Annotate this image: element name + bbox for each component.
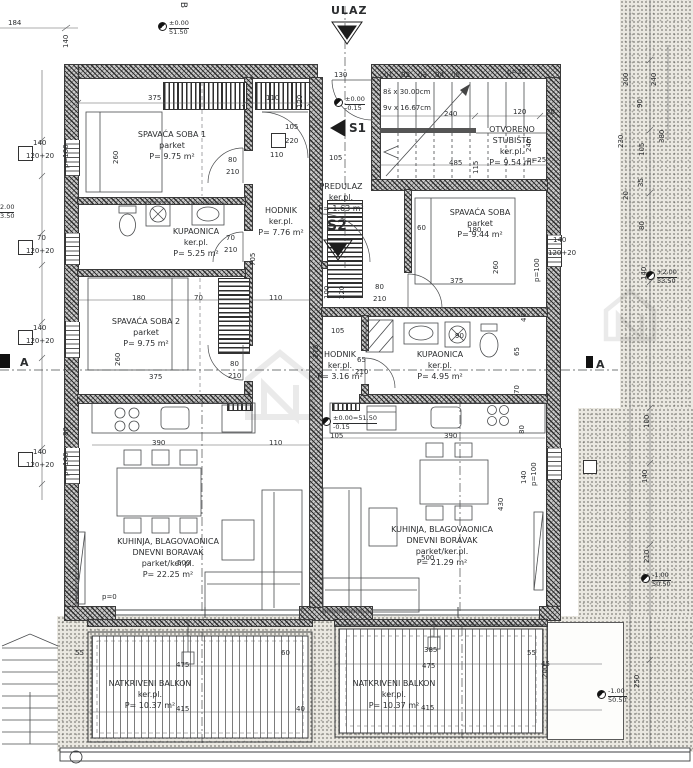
room-label-line: P= 9.54 m² [489, 157, 535, 168]
dimension-label: 705 [249, 253, 257, 266]
plan-linework [0, 0, 693, 768]
room-label-line: P= 10.37 m² [109, 700, 192, 711]
floor-plan-sheet: ULAZ S1 S2 A A B 8š x 30.00cm 9v x 16.67… [0, 0, 693, 768]
dimension-label: 55 [75, 649, 84, 657]
dimension-label: 475 [176, 661, 189, 669]
section-marker-a-left: A [20, 356, 29, 369]
dimension-label: 40 [520, 313, 528, 322]
room-label-line: P= 5.25 m² [173, 248, 219, 259]
section-bar-right [586, 356, 593, 368]
dimension-label: 220 [338, 286, 346, 299]
room-label-line: KUHINJA, BLAGOVAONICA [391, 524, 493, 535]
room-label-line: STUBIŠTE [489, 135, 535, 146]
room-label-line: ker.pl. [417, 360, 463, 371]
dimension-label: 105 [285, 123, 298, 131]
elevation-lower: 3.50 [0, 213, 14, 221]
room-label-line: HODNIK [317, 349, 362, 360]
room-label-line: HODNIK [258, 205, 303, 216]
dimension-label: 250 [633, 675, 641, 688]
dimension-label: 475 [422, 662, 435, 670]
room-label-line: ker.pl. [318, 192, 363, 203]
dimension-label: 390 [444, 432, 457, 440]
dimension-label: 105 [638, 143, 646, 156]
dimension-label: 100 [323, 286, 331, 299]
dimension-label: 375 [149, 373, 162, 381]
dimension-label: 130 [334, 71, 347, 79]
survey-point-icon [597, 690, 606, 699]
dimension-label: 385 [424, 646, 437, 654]
dimension-label: 65 [513, 347, 521, 356]
dimension-label: 375 [148, 94, 161, 102]
survey-point-icon [322, 417, 331, 426]
room-label-line: ker.pl. [353, 689, 436, 700]
dimension-label: 110 [266, 94, 279, 102]
dimension-label: 140 [553, 236, 566, 244]
section-marker-s1: S1 [349, 121, 366, 135]
room-label-line: SPAVAĆA SOBA 2 [112, 316, 180, 327]
dimension-label: 485 [449, 159, 462, 167]
dimension-label: p=100 [62, 144, 70, 168]
elevation-marker: +2.0053.50 [646, 269, 677, 285]
room-label-line: parket [450, 218, 511, 229]
dimension-label: 20 [546, 108, 555, 116]
room-label: KUPAONICAker.pl.P= 5.25 m² [173, 226, 219, 259]
elevation-lower: 50.50 [608, 697, 627, 705]
dimension-label: 375 [450, 277, 463, 285]
stair-tread-number: 02 [401, 71, 410, 79]
stair-tread-number: 03 [418, 71, 427, 79]
dimension-label: 60 [281, 649, 290, 657]
survey-point-icon [641, 574, 650, 583]
dimension-label: 90 [636, 99, 644, 108]
entrance-label: ULAZ [331, 4, 367, 17]
room-label-line: P= 4.95 m² [417, 371, 463, 382]
dimension-label: 140 [33, 448, 46, 456]
dimension-label: 115 [472, 161, 480, 174]
room-label: OTVORENOSTUBIŠTEker.pl.P= 9.54 m² [489, 124, 535, 168]
dimension-label: p=25 [507, 68, 526, 76]
dimension-label: 80 [62, 427, 70, 436]
room-label-line: ker.pl. [317, 360, 362, 371]
dimension-label: p=0 [102, 593, 117, 601]
dimension-label: 110 [269, 294, 282, 302]
room-label-line: parket [112, 327, 180, 338]
dimension-label: 80 [518, 425, 526, 434]
dimension-label: 100 [643, 415, 651, 428]
room-label-line: KUPAONICA [173, 226, 219, 237]
room-label: SPAVAĆA SOBA 2parketP= 9.75 m² [112, 316, 180, 349]
section-bar-left [0, 354, 10, 368]
dimension-label: 80 [638, 221, 646, 230]
room-label-line: ker.pl. [173, 237, 219, 248]
dimension-label: 390 [152, 439, 165, 447]
room-label: KUPAONICAker.pl.P= 4.95 m² [417, 349, 463, 382]
dimension-label: 240 [444, 110, 457, 118]
room-label-line: PREDULAZ [318, 181, 363, 192]
stair-tread-number: 04 [435, 71, 444, 79]
dimension-label: 120 [513, 108, 526, 116]
dimension-label: 210 [228, 372, 241, 380]
survey-point-icon [646, 271, 655, 280]
grid-label-b: B [178, 2, 188, 8]
dimension-label: p=100 [530, 462, 538, 486]
dimension-label: 20 [622, 191, 630, 200]
elevation-marker: ±0.0051.50 [158, 20, 189, 36]
elevation-lower: -0.15 [345, 105, 365, 113]
dimension-label: 105 [331, 327, 344, 335]
survey-point-icon [334, 98, 343, 107]
room-label-line: OTVORENO [489, 124, 535, 135]
stair-tread-number: 01 [384, 71, 393, 79]
dimension-label: 430 [497, 498, 505, 511]
room-label-line: P= 9.44 m² [450, 229, 511, 240]
stair-rise-label: 9v x 16.67cm [383, 104, 431, 112]
dimension-label: 70 [194, 294, 203, 302]
dimension-label: 210 [373, 295, 386, 303]
dimension-label: 120 [296, 95, 304, 108]
room-label: NATKRIVENI BALKONker.pl.P= 10.37 m² [353, 678, 436, 711]
room-label-line: NATKRIVENI BALKON [353, 678, 436, 689]
dimension-label: 240 [650, 73, 658, 86]
room-label-line: P= 9.75 m² [112, 338, 180, 349]
dimension-label: 140 [641, 470, 649, 483]
survey-point-icon [158, 22, 167, 31]
dimension-label: 260 [114, 353, 122, 366]
dimension-label: 120+20 [548, 249, 576, 257]
section-marker-s2: S2 [327, 218, 347, 234]
room-label-line: NATKRIVENI BALKON [109, 678, 192, 689]
dimension-label: 120+20 [26, 247, 54, 255]
dimension-label: 260 [112, 151, 120, 164]
dimension-label: 110 [269, 439, 282, 447]
stair-tread-number: 05 [451, 71, 460, 79]
dimension-label: 140 [62, 35, 70, 48]
elevation-marker: ±0.00=51.50-0.15 [322, 415, 377, 431]
room-label: HODNIKker.pl.P= 3.16 m² [317, 349, 362, 382]
dimension-label: 220 [285, 137, 298, 145]
room-label-line: P= 22.25 m² [117, 569, 219, 580]
elevation-lower: 51.50 [169, 29, 189, 37]
dimension-label: 260 [492, 261, 500, 274]
dimension-label: 105 [330, 432, 343, 440]
dimension-label: 120+20 [26, 461, 54, 469]
room-label-line: KUHINJA, BLAGOVAONICA [117, 536, 219, 547]
room-label-line: P= 10.37 m² [353, 700, 436, 711]
room-label-line: DNEVNI BORAVAK [117, 547, 219, 558]
elevation-marker: 2.003.50 [0, 204, 14, 220]
dimension-label: 40 [296, 705, 305, 713]
room-label-line: SPAVAĆA SOBA [450, 207, 511, 218]
room-label-line: P= 1.63 m² [318, 203, 363, 214]
dimension-label: 60 [417, 224, 426, 232]
dimension-label: 80 [375, 283, 384, 291]
room-label-line: KUPAONICA [417, 349, 463, 360]
room-label-line: P= 9.75 m² [138, 151, 206, 162]
dimension-label: 140 [33, 139, 46, 147]
room-label: HODNIKker.pl.P= 7.76 m² [258, 205, 303, 238]
elevation-lower: 50.50 [652, 581, 671, 589]
dimension-label: 180 [132, 294, 145, 302]
dimension-label: 55 [527, 649, 536, 657]
elevation-marker: ±0.00-0.15 [334, 96, 365, 112]
dimension-label: 70 [226, 234, 235, 242]
room-label: PREDULAZker.pl.P= 1.63 m² [318, 181, 363, 214]
dimension-label: 210 [643, 550, 651, 563]
dimension-label: 230 [617, 135, 625, 148]
room-label: KUHINJA, BLAGOVAONICADNEVNI BORAVAKparke… [117, 536, 219, 580]
room-label-line: parket [138, 140, 206, 151]
room-label: SPAVAĆA SOBAparketP= 9.44 m² [450, 207, 511, 240]
room-label-line: ker.pl. [258, 216, 303, 227]
stair-run-label: 8š x 30.00cm [383, 88, 430, 96]
room-label-line: SPAVAĆA SOBA 1 [138, 129, 206, 140]
dimension-label: 184 [8, 19, 21, 27]
room-label: SPAVAĆA SOBA 1parketP= 9.75 m² [138, 129, 206, 162]
dimension-label: 35 [637, 178, 645, 187]
dimension-label: 140 [520, 471, 528, 484]
dimension-label: 80 [230, 360, 239, 368]
room-label: KUHINJA, BLAGOVAONICADNEVNI BORAVAKparke… [391, 524, 493, 568]
room-label-line: ker.pl. [109, 689, 192, 700]
dimension-label: 210 [224, 246, 237, 254]
dimension-label: 380 [658, 130, 666, 143]
elevation-lower: 53.50 [657, 278, 677, 286]
dimension-label: 90 [455, 332, 464, 340]
section-marker-a-right: A [596, 358, 605, 371]
dimension-label: 80 [228, 156, 237, 164]
dimension-label: 120+20 [26, 152, 54, 160]
dimension-label: p=100 [533, 258, 541, 282]
room-label-line: ker.pl. [489, 146, 535, 157]
room-label: NATKRIVENI BALKONker.pl.P= 10.37 m² [109, 678, 192, 711]
dimension-label: 70 [513, 385, 521, 394]
dimension-label: 110 [270, 151, 283, 159]
room-label-line: P= 3.16 m² [317, 371, 362, 382]
room-label-line: P= 21.29 m² [391, 557, 493, 568]
elevation-marker: -1.0050.50 [597, 688, 627, 704]
dimension-label: 105 [329, 154, 342, 162]
room-label-line: parket/ker.pl. [391, 546, 493, 557]
dimension-label: 200 [622, 73, 630, 86]
elevation-lower: -0.15 [333, 424, 377, 432]
room-label-line: DNEVNI BORAVAK [391, 535, 493, 546]
dimension-label: 210 [226, 168, 239, 176]
dimension-label: 70 [37, 234, 46, 242]
room-label-line: P= 7.76 m² [258, 227, 303, 238]
dimension-label: p=100 [62, 452, 70, 476]
elevation-marker: -1.0050.50 [641, 572, 671, 588]
dimension-label: 200 [541, 665, 549, 678]
dimension-label: 140 [33, 324, 46, 332]
room-label-line: parket/ker.pl. [117, 558, 219, 569]
dimension-label: 120+20 [26, 337, 54, 345]
